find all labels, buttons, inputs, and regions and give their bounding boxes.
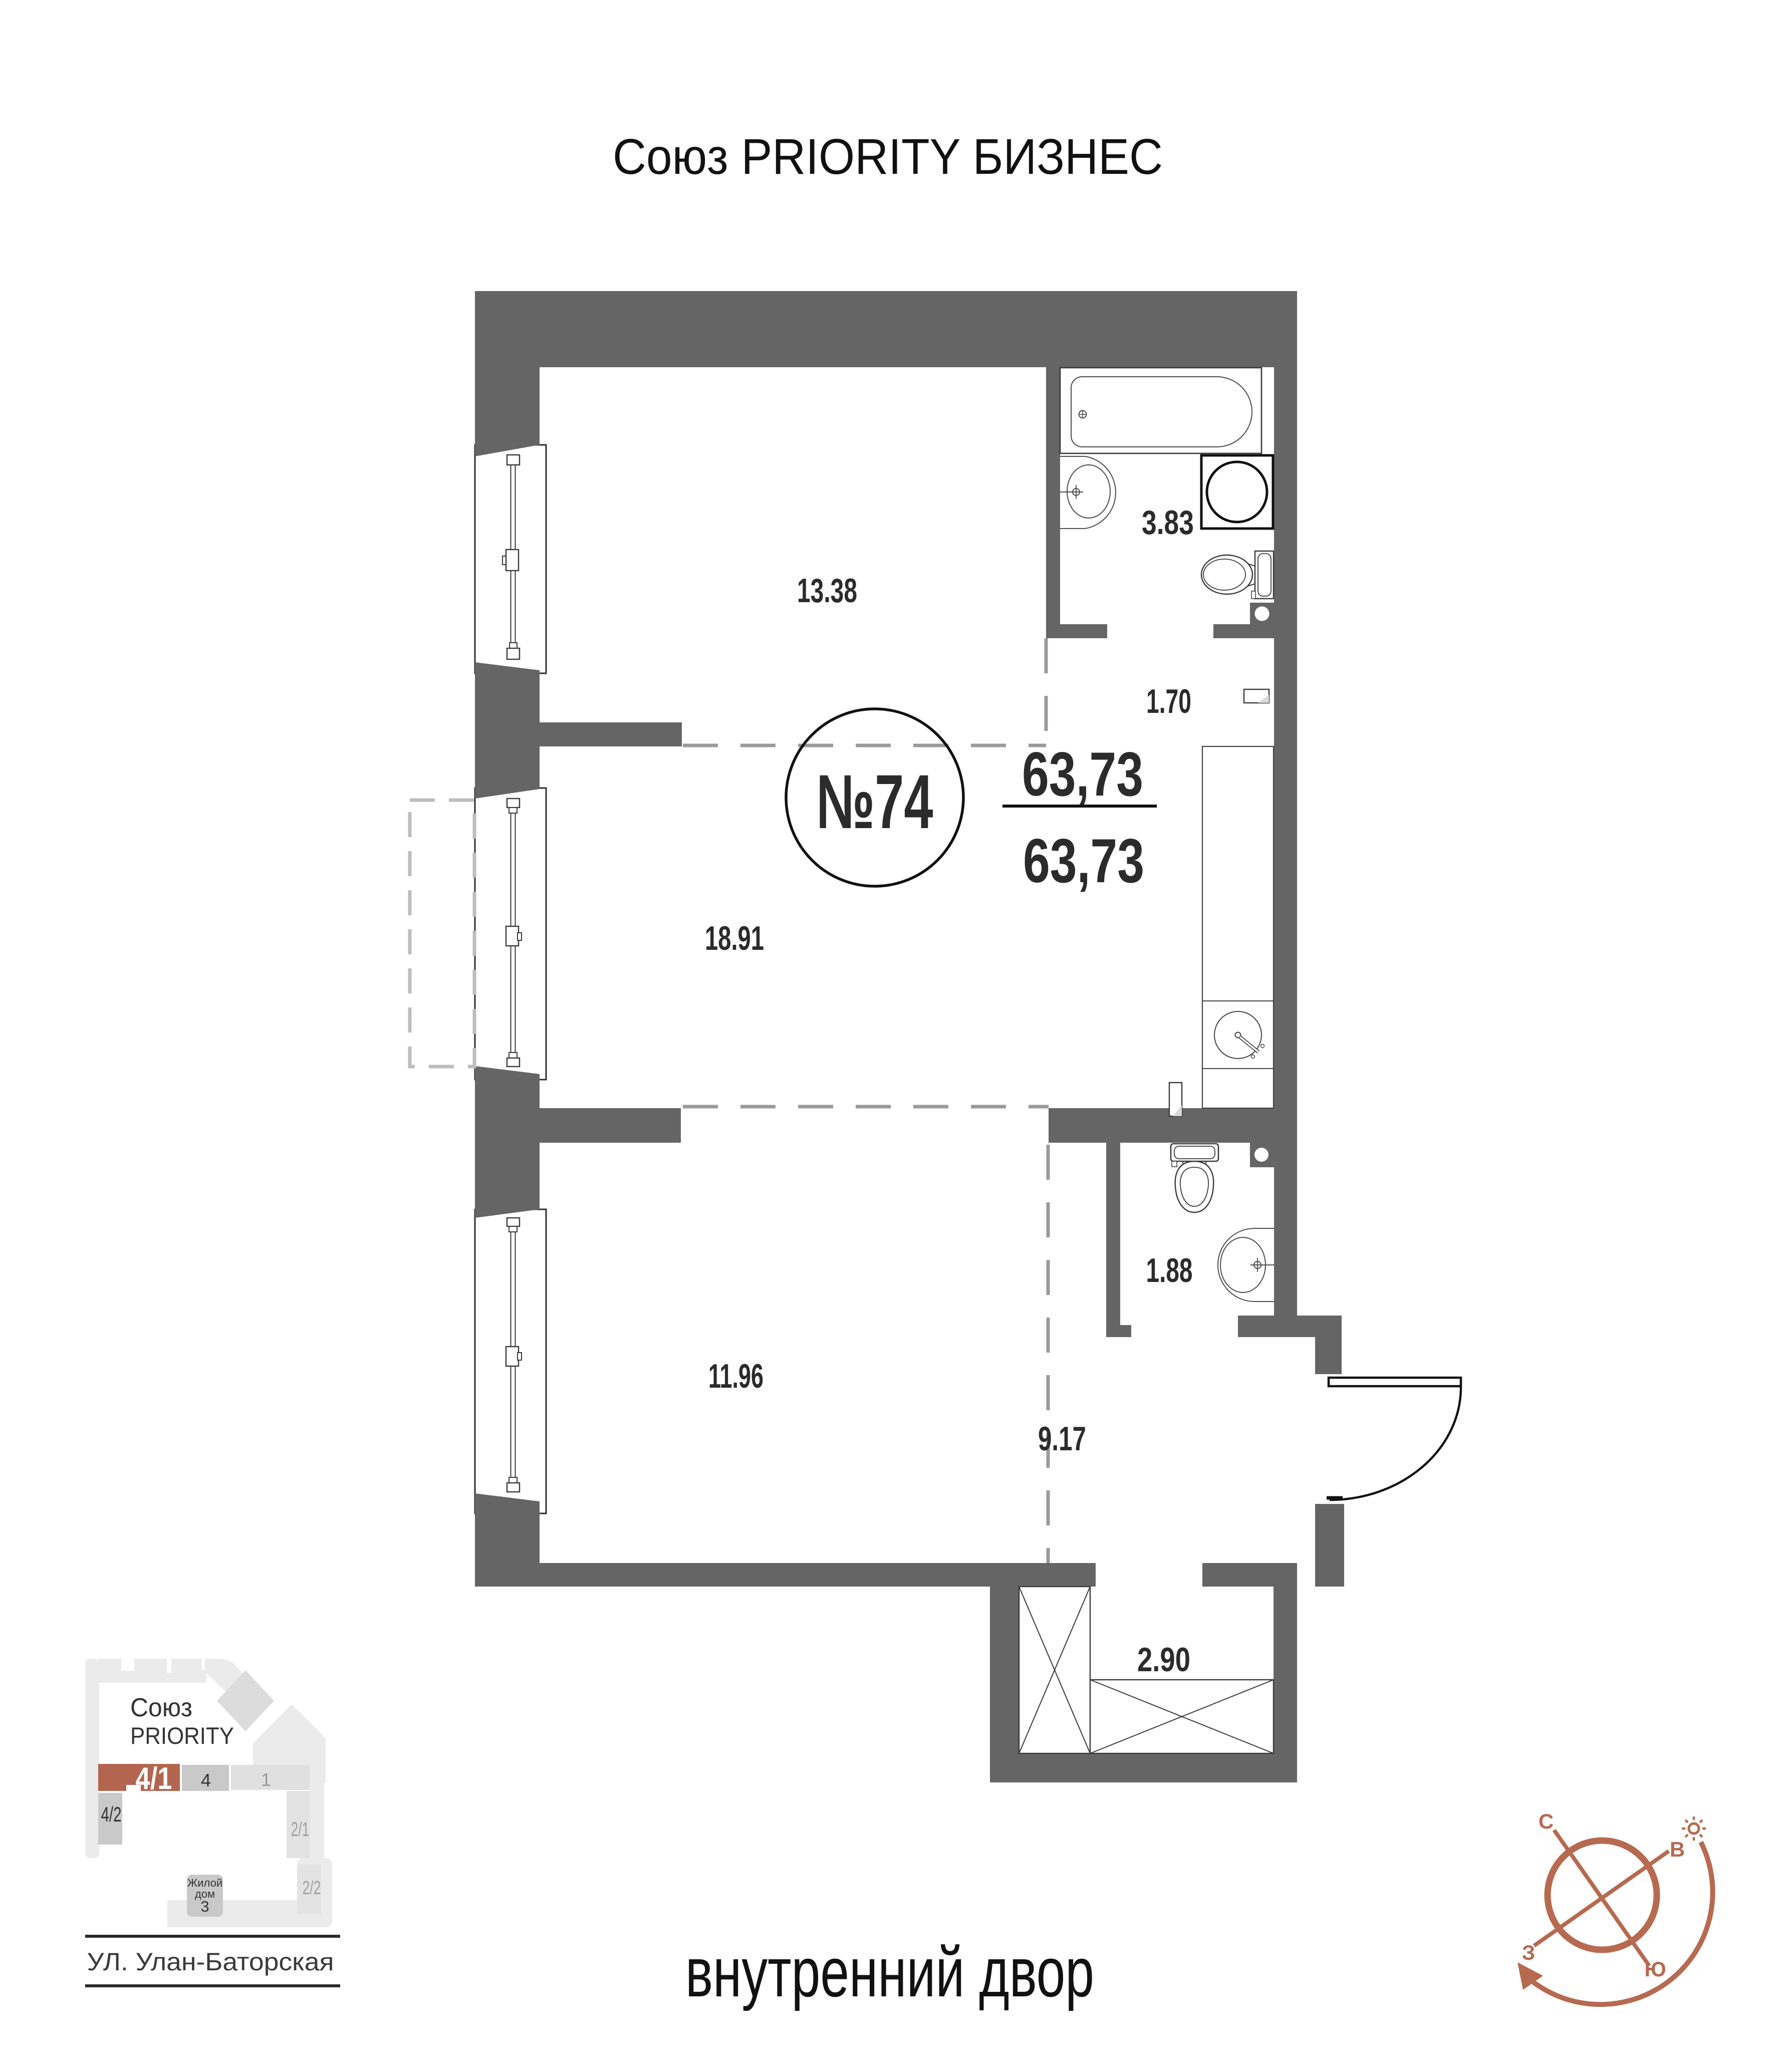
svg-text:63,73: 63,73 (1023, 827, 1144, 896)
svg-text:4/1: 4/1 (136, 1761, 172, 1796)
svg-text:УЛ. Улан-Баторская: УЛ. Улан-Баторская (87, 1948, 334, 1976)
svg-text:1.70: 1.70 (1146, 682, 1191, 720)
svg-text:2/2: 2/2 (303, 1878, 321, 1899)
svg-text:Союз: Союз (130, 1693, 192, 1722)
svg-text:2.90: 2.90 (1137, 1641, 1190, 1679)
svg-text:18.91: 18.91 (705, 919, 764, 957)
svg-text:63,73: 63,73 (1022, 740, 1143, 809)
svg-text:2/1: 2/1 (291, 1819, 310, 1841)
svg-text:1.88: 1.88 (1146, 1251, 1193, 1289)
svg-text:3: 3 (200, 1898, 209, 1915)
svg-text:1: 1 (261, 1769, 271, 1790)
svg-text:Союз PRIORITY БИЗНЕС: Союз PRIORITY БИЗНЕС (613, 129, 1163, 185)
svg-text:В: В (1670, 1838, 1685, 1861)
svg-text:4: 4 (201, 1770, 211, 1790)
svg-text:Ю: Ю (1644, 1957, 1666, 1981)
svg-text:9.17: 9.17 (1038, 1420, 1086, 1458)
svg-text:внутренний двор: внутренний двор (685, 1933, 1094, 2011)
svg-text:PRIORITY: PRIORITY (130, 1722, 234, 1749)
svg-text:13.38: 13.38 (797, 572, 857, 610)
svg-text:С: С (1539, 1809, 1554, 1833)
svg-text:З: З (1522, 1941, 1535, 1964)
svg-text:4/2: 4/2 (101, 1802, 122, 1826)
svg-text:№74: №74 (817, 759, 933, 845)
svg-text:11.96: 11.96 (708, 1357, 764, 1395)
svg-text:3.83: 3.83 (1142, 503, 1194, 542)
